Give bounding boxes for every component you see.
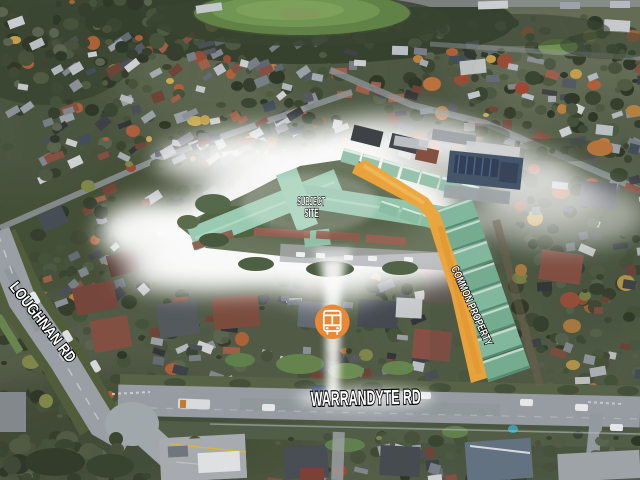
svg-text:SITE: SITE [304,206,319,220]
svg-text:WARRANDYTE RD: WARRANDYTE RD [311,386,421,411]
